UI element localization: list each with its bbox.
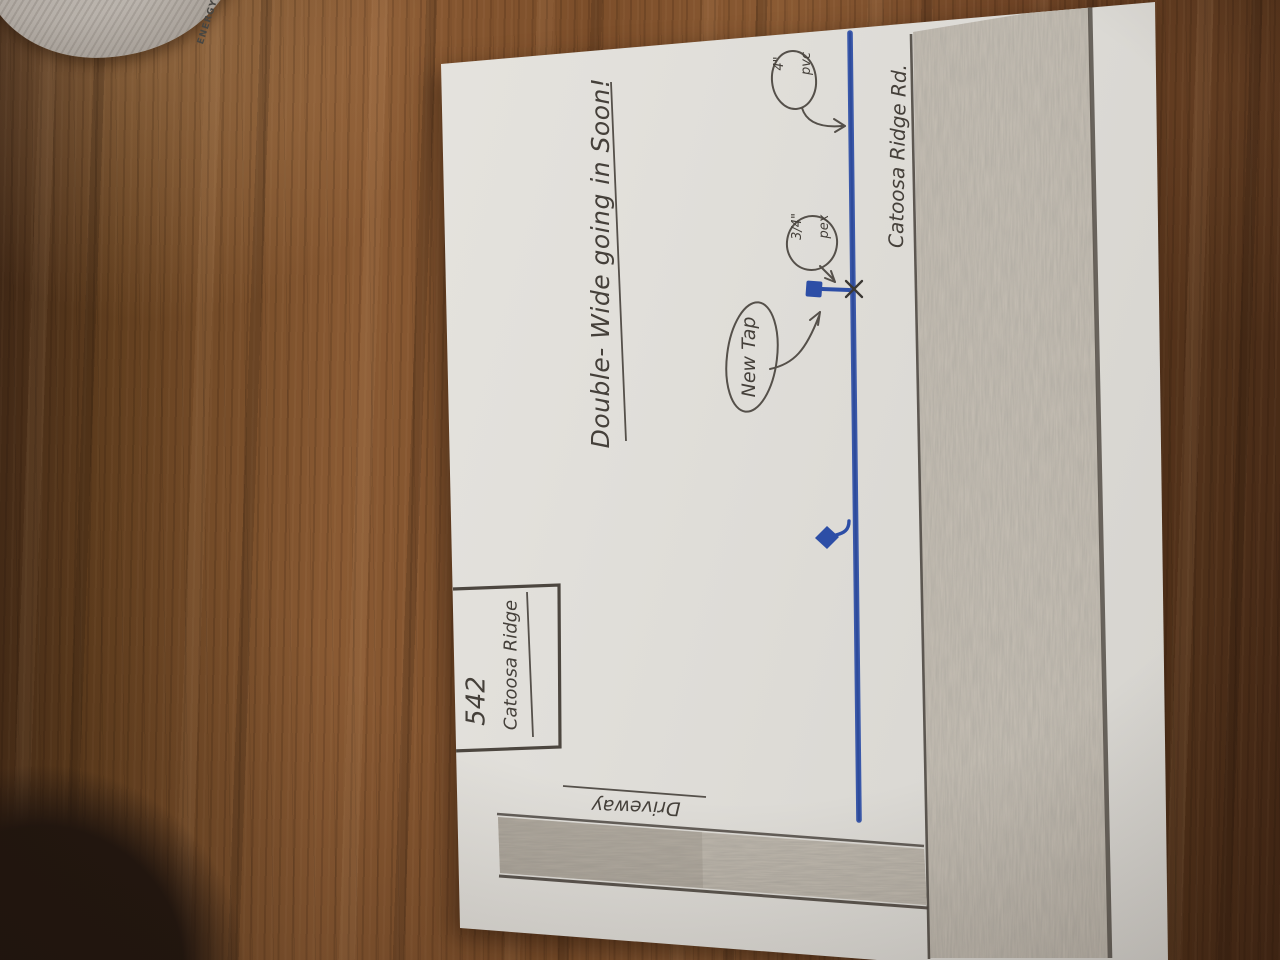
road-edge-line-near — [911, 34, 929, 959]
paper-shadow-wrap: Double- Wide going in Soon! 542 Catoosa … — [0, 0, 1280, 960]
address-number: 542 — [463, 676, 490, 726]
note-text: Double- Wide going in Soon! — [588, 78, 614, 449]
pex-label-line1: 3/4" — [790, 213, 805, 240]
pex-arrow — [820, 266, 835, 282]
new-tap-arrow — [770, 312, 820, 369]
pex-label: 3/4" pex — [777, 213, 845, 273]
sketch-drawing — [0, 0, 1280, 960]
pex-label-line2: pex — [817, 215, 832, 239]
photo-scene: ENERGY — [0, 0, 1280, 960]
new-tap-oval-outline — [720, 299, 783, 414]
new-tap-label: New Tap — [740, 317, 760, 398]
pvc-label: 4" pvc — [759, 52, 827, 108]
address-box — [453, 585, 560, 751]
water-main-core — [850, 33, 859, 820]
pex-bubble-outline — [783, 212, 842, 274]
driveway-label: Driveway — [591, 794, 681, 817]
driveway-edge-top — [497, 814, 924, 846]
address-street: Catoosa Ridge — [503, 600, 522, 730]
address-underline — [527, 592, 533, 737]
road-surface — [913, 3, 1108, 958]
driveway-edge-bottom — [499, 876, 928, 908]
driveway-surface — [498, 817, 927, 905]
water-main-line — [850, 33, 859, 820]
tap-x-mark — [846, 281, 862, 297]
sketch-paper: Double- Wide going in Soon! 542 Catoosa … — [0, 0, 1280, 960]
road-edge-line-far — [1090, 3, 1110, 958]
valve-stub-curve — [836, 521, 849, 535]
service-stub-line — [822, 289, 849, 290]
valve-diamond — [815, 526, 839, 549]
note-underline — [611, 82, 626, 441]
road-label: Catoosa Ridge Rd. — [886, 64, 910, 248]
pvc-bubble-outline — [769, 49, 819, 111]
driveway-underline — [563, 786, 706, 797]
meter-box — [805, 280, 822, 297]
pvc-label-line1: 4" — [772, 56, 787, 70]
pvc-arrow — [802, 108, 845, 132]
pvc-label-line2: pvc — [799, 52, 814, 75]
